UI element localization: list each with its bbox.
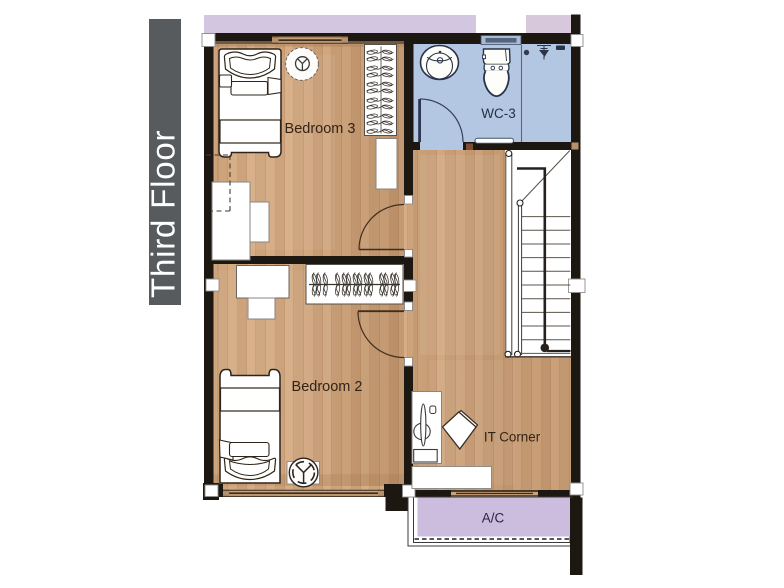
svg-text:WC-3: WC-3 [481, 106, 516, 121]
svg-text:Bedroom 2: Bedroom 2 [292, 379, 363, 395]
svg-text:A/C: A/C [482, 511, 505, 526]
svg-text:IT Corner: IT Corner [484, 430, 541, 445]
svg-text:Third Floor: Third Floor [145, 130, 182, 298]
svg-text:Bedroom 3: Bedroom 3 [285, 121, 356, 137]
